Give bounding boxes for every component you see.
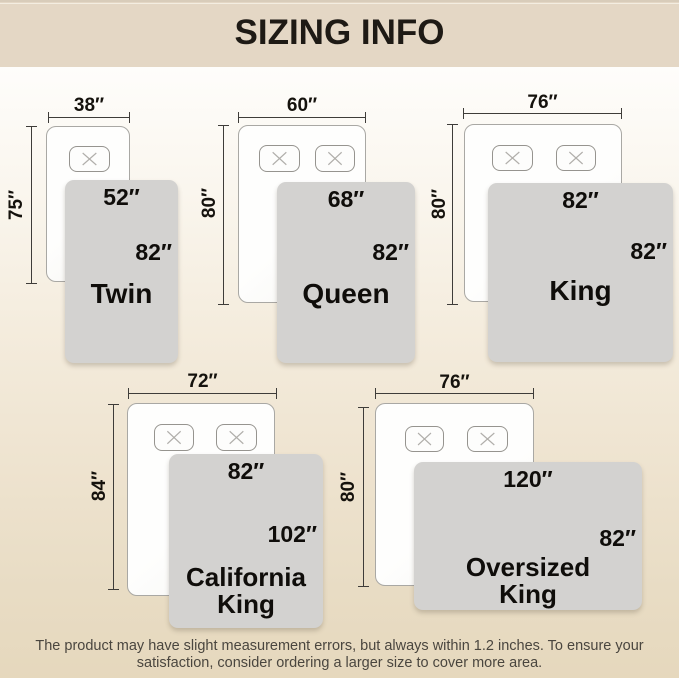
oversized-king-blanket-width-label: 120″ <box>414 466 642 493</box>
twin-blanket: 52″ 82″ Twin <box>65 180 178 363</box>
oversized-king-width-dimension-line <box>375 393 534 394</box>
queen-size-name: Queen <box>277 279 415 308</box>
oversized-king-blanket: 120″ 82″ Oversized King <box>414 462 642 610</box>
pillow-x-icon <box>405 426 444 452</box>
twin-mattress-width-label: 38″ <box>48 95 130 117</box>
twin-length-dimension-line <box>31 126 32 284</box>
oversized-king-size-name: Oversized King <box>414 554 642 608</box>
oversized-king-mattress-length-label: 80″ <box>339 465 359 509</box>
twin-blanket-width-label: 52″ <box>65 184 178 211</box>
california-king-mattress-length-label: 84″ <box>90 464 110 508</box>
twin-mattress-length-label: 75″ <box>7 183 27 227</box>
king-size-name: King <box>488 276 673 305</box>
oversized-king-mattress-width-label: 76″ <box>375 372 534 394</box>
sizing-info-page: SIZING INFO 38″ 75″ 52″ 82″ Twin 60″ 80″ <box>0 0 679 678</box>
measurement-disclaimer: The product may have slight measurement … <box>0 638 679 673</box>
queen-mattress-length-label: 80″ <box>200 181 220 225</box>
pillow-x-icon <box>467 426 508 452</box>
header-band: SIZING INFO <box>0 0 679 67</box>
pillow-x-icon <box>154 424 194 451</box>
king-mattress-length-label: 80″ <box>430 182 450 226</box>
pillow-x-icon <box>556 145 596 171</box>
queen-blanket: 68″ 82″ Queen <box>277 182 415 363</box>
california-king-length-dimension-line <box>113 404 114 590</box>
twin-size-name: Twin <box>65 279 178 308</box>
pillow-x-icon <box>259 145 300 172</box>
king-blanket: 82″ 82″ King <box>488 183 673 362</box>
california-king-blanket-length-label: 102″ <box>268 521 317 548</box>
california-king-blanket-width-label: 82″ <box>169 458 323 485</box>
pillow-x-icon <box>315 145 355 172</box>
california-king-mattress-width-label: 72″ <box>128 371 277 393</box>
california-king-size-name: California King <box>169 564 323 618</box>
queen-width-dimension-line <box>238 117 366 118</box>
queen-length-dimension-line <box>223 125 224 305</box>
queen-mattress-width-label: 60″ <box>238 95 366 117</box>
queen-blanket-width-label: 68″ <box>277 186 415 213</box>
twin-width-dimension-line <box>48 117 130 118</box>
queen-blanket-length-label: 82″ <box>372 239 409 266</box>
oversized-king-blanket-length-label: 82″ <box>599 525 636 552</box>
california-king-blanket: 82″ 102″ California King <box>169 454 323 628</box>
oversized-king-length-dimension-line <box>363 407 364 587</box>
page-title: SIZING INFO <box>235 13 445 57</box>
california-king-width-dimension-line <box>128 393 277 394</box>
king-blanket-length-label: 82″ <box>630 238 667 265</box>
king-length-dimension-line <box>452 124 453 305</box>
king-mattress-width-label: 76″ <box>463 92 622 114</box>
king-width-dimension-line <box>463 113 622 114</box>
king-blanket-width-label: 82″ <box>488 187 673 214</box>
pillow-x-icon <box>492 145 533 171</box>
twin-blanket-length-label: 82″ <box>135 239 172 266</box>
pillow-x-icon <box>216 424 257 451</box>
pillow-x-icon <box>69 146 110 172</box>
